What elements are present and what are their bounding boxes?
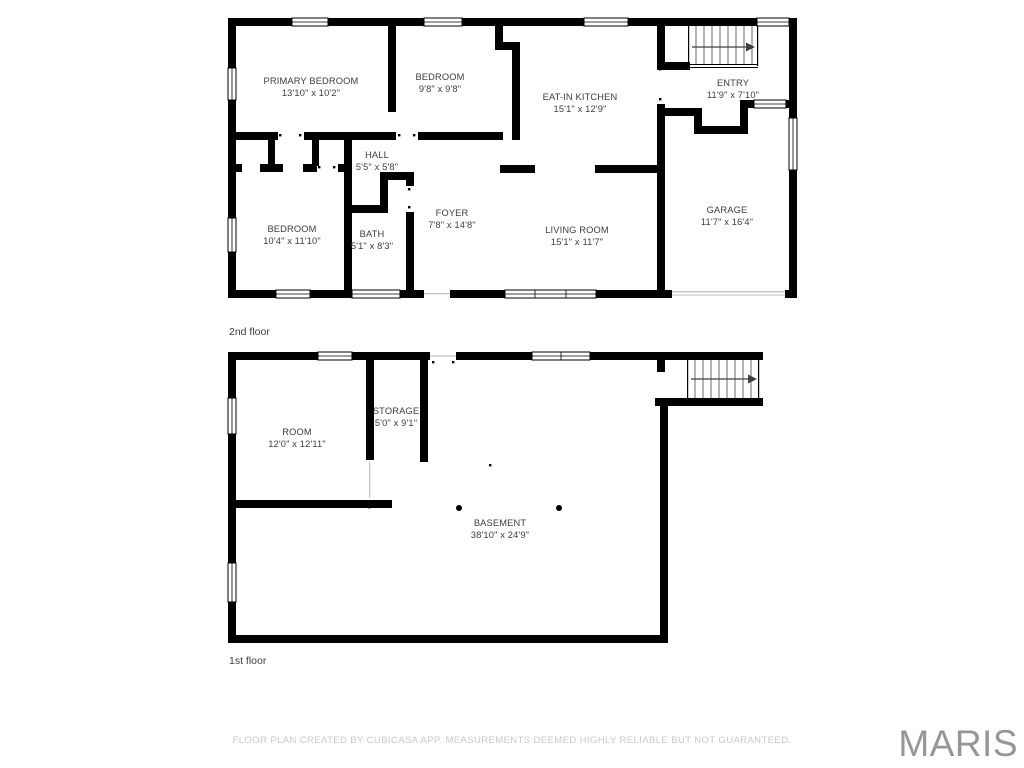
room-label-bedroom-lower: BEDROOM 10'4" x 11'10"	[263, 223, 321, 247]
second-floor-doors	[279, 68, 785, 298]
room-label-eat-in-kitchen: EAT-IN KITCHEN 15'1" x 12'9"	[543, 91, 618, 115]
room-name: BATH	[351, 228, 393, 240]
floor-label-2nd: 2nd floor	[229, 326, 270, 338]
room-name: BEDROOM	[263, 223, 321, 235]
room-dims: 5'5" x 5'8"	[356, 161, 398, 173]
room-dims: 38'10" x 24'9"	[471, 529, 529, 541]
room-name: GARAGE	[701, 204, 753, 216]
room-name: PRIMARY BEDROOM	[264, 75, 359, 87]
room-name: HALL	[356, 149, 398, 161]
room-label-basement: BASEMENT 38'10" x 24'9"	[471, 517, 529, 541]
stairs-direction-arrow	[692, 43, 755, 52]
room-label-garage: GARAGE 11'7" x 16'4"	[701, 204, 753, 228]
room-label-room: ROOM 12'0" x 12'11"	[268, 426, 326, 450]
room-label-bedroom-top: BEDROOM 9'8" x 9'8"	[415, 71, 464, 95]
first-floor-windows	[228, 352, 590, 602]
room-name: EAT-IN KITCHEN	[543, 91, 618, 103]
first-floor-walls	[228, 352, 763, 643]
room-name: LIVING ROOM	[545, 224, 609, 236]
room-name: ROOM	[268, 426, 326, 438]
room-label-storage: STORAGE 5'0" x 9'1"	[373, 405, 419, 429]
room-label-living-room: LIVING ROOM 15'1" x 11'7"	[545, 224, 609, 248]
floor-plan-drawing	[0, 0, 1024, 768]
room-dims: 15'1" x 11'7"	[545, 236, 609, 248]
floor-label-1st: 1st floor	[229, 655, 266, 667]
basement-columns	[456, 505, 562, 511]
room-label-foyer: FOYER 7'8" x 14'8"	[428, 207, 476, 231]
room-dims: 11'9" x 7'10"	[707, 89, 759, 101]
room-dims: 5'0" x 9'1"	[373, 417, 419, 429]
second-floor-stairs	[688, 26, 758, 68]
support-column	[456, 505, 462, 511]
room-name: BASEMENT	[471, 517, 529, 529]
support-column	[556, 505, 562, 511]
room-dims: 9'8" x 9'8"	[415, 83, 464, 95]
disclaimer-text: FLOOR PLAN CREATED BY CUBICASA APP. MEAS…	[0, 735, 1024, 746]
stairs-direction-arrow	[691, 375, 757, 384]
room-dims: 11'7" x 16'4"	[701, 216, 753, 228]
room-label-entry: ENTRY 11'9" x 7'10"	[707, 77, 759, 101]
room-dims: 7'8" x 14'8"	[428, 219, 476, 231]
room-name: ENTRY	[707, 77, 759, 89]
room-dims: 5'1" x 8'3"	[351, 240, 393, 252]
room-name: FOYER	[428, 207, 476, 219]
floor-plan-page: PRIMARY BEDROOM 13'10" x 10'2" BEDROOM 9…	[0, 0, 1024, 768]
room-dims: 13'10" x 10'2"	[264, 87, 359, 99]
room-name: STORAGE	[373, 405, 419, 417]
room-dims: 15'1" x 12'9"	[543, 103, 618, 115]
room-dims: 10'4" x 11'10"	[263, 235, 321, 247]
maris-watermark: MARIS	[898, 725, 1018, 763]
room-dims: 12'0" x 12'11"	[268, 438, 326, 450]
room-label-bath: BATH 5'1" x 8'3"	[351, 228, 393, 252]
room-label-primary-bedroom: PRIMARY BEDROOM 13'10" x 10'2"	[264, 75, 359, 99]
room-name: BEDROOM	[415, 71, 464, 83]
first-floor-doors	[368, 355, 491, 508]
room-label-hall: HALL 5'5" x 5'8"	[356, 149, 398, 173]
first-floor-stairs	[687, 360, 759, 398]
